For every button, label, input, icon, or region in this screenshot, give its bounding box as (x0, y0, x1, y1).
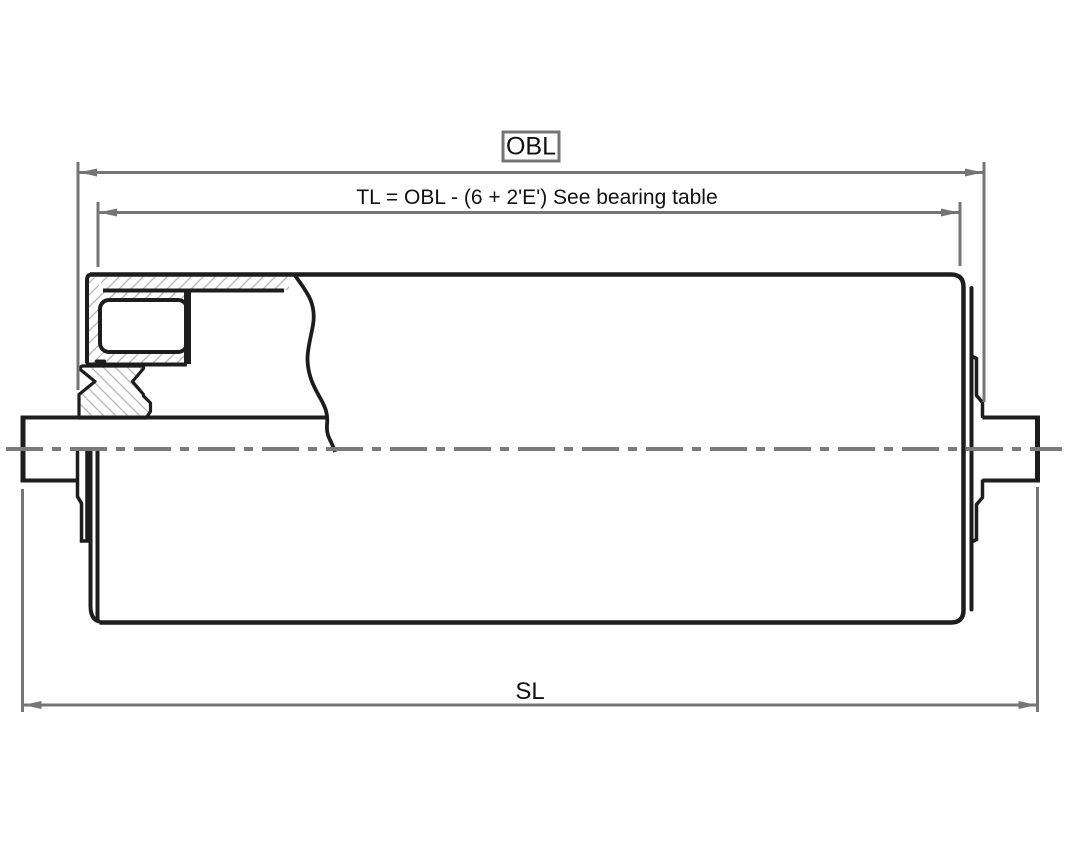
tube-wall-hatch (101, 275, 289, 290)
drawing-canvas: OBL TL = OBL - (6 + 2'E') See bearing ta… (0, 0, 1071, 864)
sl-label: SL (515, 678, 544, 705)
tl-formula-label: TL = OBL - (6 + 2'E') See bearing table (356, 186, 717, 209)
background (0, 0, 1071, 864)
housing-left-hatch (88, 278, 99, 364)
obl-label: OBL (506, 133, 556, 161)
bearing-cavity (100, 300, 187, 352)
roller-drawing: OBL TL = OBL - (6 + 2'E') See bearing ta… (0, 0, 1071, 864)
labyrinth-seal (79, 366, 151, 418)
snap-ring (95, 360, 106, 367)
